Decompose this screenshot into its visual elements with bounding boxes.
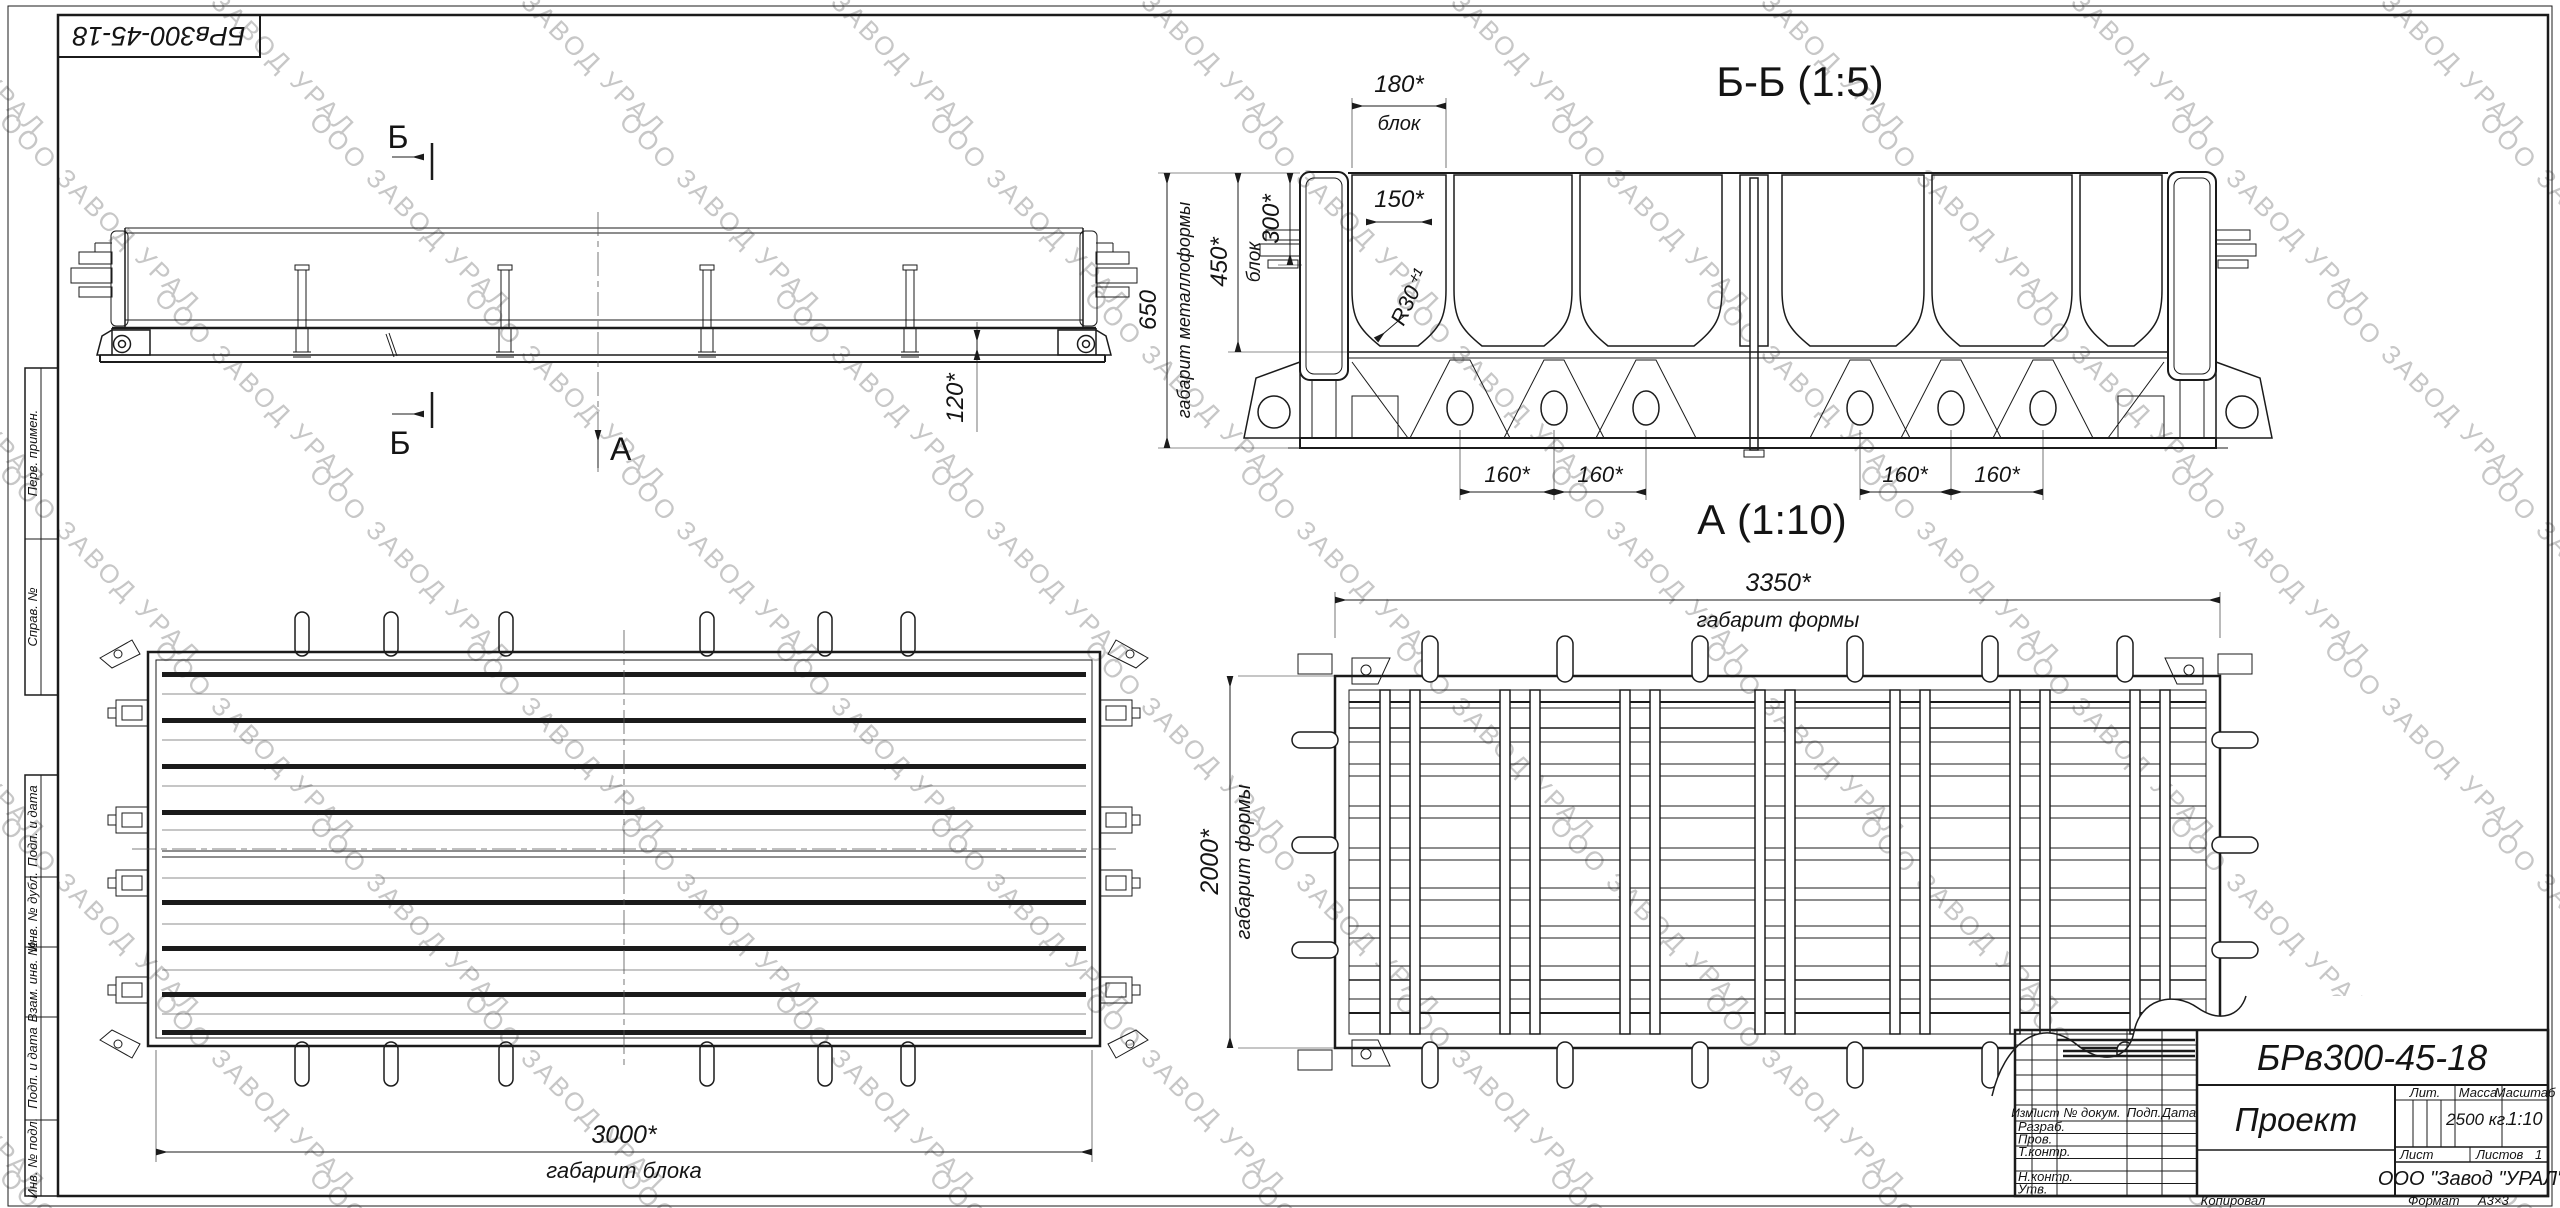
corner-stamp-number: БРв300-45-18	[73, 21, 246, 51]
tb-company: ООО "Завод "УРАЛ"	[2378, 1168, 2560, 1190]
tb-doc-number: БРв300-45-18	[2257, 1037, 2487, 1078]
dim-3000-text: 3000*	[591, 1121, 658, 1149]
tb-listov-value: 1	[2535, 1147, 2542, 1162]
dim-160-text-4: 160*	[1974, 462, 2021, 487]
dim-160-text-1: 160*	[1484, 462, 1531, 487]
tb-row-utv: Утв.	[2017, 1182, 2048, 1197]
view-a-pins	[1292, 636, 2258, 1088]
tb-col-data: Дата	[2160, 1105, 2196, 1120]
tb-massa-value: 2500 кг.	[2445, 1110, 2510, 1129]
dim-2000-label: габарит формы	[1233, 784, 1255, 939]
section-b-b-view: Б-Б (1:5)	[1135, 58, 2272, 500]
view-a-title: А (1:10)	[1697, 496, 1846, 543]
frame-label-podp-data-bottom: Подп. и дата	[25, 1027, 40, 1108]
frame-label-perv-primen: Перв. примен.	[25, 410, 40, 496]
dim-180-label: блок	[1378, 113, 1422, 135]
corner-stamp: БРв300-45-18	[58, 15, 260, 57]
tb-format-value: А3×3	[2477, 1193, 2509, 1208]
frame-label-inv-dubl: Инв. № дубл.	[25, 872, 40, 952]
tb-project-name: Проект	[2235, 1101, 2357, 1138]
view-a-arrow-letter: А	[610, 431, 632, 467]
frame-label-podp-data-top: Подп. и дата	[25, 785, 40, 866]
dim-3350-label: габарит формы	[1697, 609, 1860, 632]
dim-2000-text: 2000*	[1196, 828, 1224, 896]
side-view-pins	[293, 265, 919, 357]
side-view-right-clamp	[1096, 243, 1137, 297]
dim-3000-label: габарит блока	[546, 1158, 702, 1183]
frame-label-sprav-no: Справ. №	[25, 587, 40, 646]
tb-massa-label: Масса	[2459, 1085, 2497, 1100]
tb-lit-label: Лит.	[2409, 1085, 2440, 1100]
dim-450-label: блок	[1244, 241, 1265, 283]
side-view-left-clamp	[71, 243, 112, 297]
tb-masshtab-value: 1:10	[2507, 1109, 2542, 1129]
dim-3350-text: 3350*	[1745, 569, 1812, 597]
dim-160-text-3: 160*	[1882, 462, 1929, 487]
section-title: Б-Б (1:5)	[1716, 58, 1883, 105]
tb-col-ndokum: № докум.	[2063, 1105, 2120, 1120]
tb-col-list: Лист	[2028, 1106, 2060, 1120]
tb-col-podp: Подп.	[2127, 1105, 2162, 1120]
dim-120-text: 120*	[942, 373, 969, 423]
tb-kopiroval: Копировал	[2201, 1193, 2266, 1208]
dim-300-text: 300*	[1258, 194, 1285, 244]
tb-format-label: Формат	[2408, 1193, 2460, 1208]
section-mark-bottom-letter: Б	[390, 425, 411, 461]
view-a: А (1:10) 3350* габарит формы 2000* габар…	[1196, 496, 2556, 1196]
dim-650-text: 650	[1135, 289, 1162, 330]
view-a-corner-brackets	[1298, 654, 2252, 1070]
section-mark-top-letter: Б	[388, 119, 409, 155]
dim-150-text: 150*	[1374, 186, 1424, 213]
plan-view: 3000* габарит блока	[100, 612, 1148, 1183]
drawing-svg: Б Б А 120*	[0, 0, 2560, 1208]
tb-list-label: Лист	[2399, 1147, 2434, 1162]
dim-650-label: габарит металлоформы	[1174, 202, 1194, 419]
tb-listov-label: Листов	[2475, 1147, 2524, 1162]
tb-masshtab-label: Масштаб	[2495, 1085, 2556, 1100]
dim-r30-text: R30⁺¹	[1385, 265, 1433, 329]
dim-180-text: 180*	[1374, 71, 1424, 98]
dim-160-text-2: 160*	[1577, 462, 1624, 487]
side-view-corner-rollers	[97, 330, 1111, 355]
frame-left-column: Перв. примен. Справ. № Подп. и дата Инв.…	[25, 368, 58, 1198]
dim-450-text: 450*	[1206, 237, 1233, 287]
frame-label-vzam-inv: Взам. инв. №	[25, 942, 40, 1022]
drawing-sheet: ООО ЗАВОД УРАЛООО ЗАВОД УРАЛООО ЗАВОД УР…	[0, 0, 2560, 1208]
frame-label-inv-podl: Инв. № подл.	[25, 1118, 40, 1199]
side-view: Б Б А 120*	[71, 119, 1137, 472]
tb-row-tkontr: Т.контр.	[2018, 1144, 2070, 1159]
